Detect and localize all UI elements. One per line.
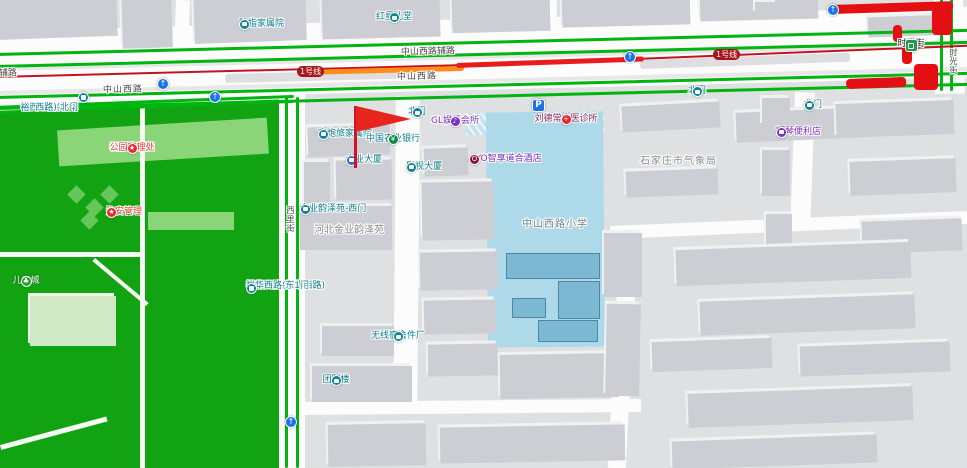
parking-icon[interactable]: P <box>532 99 545 112</box>
school-building <box>506 253 600 279</box>
flag-marker[interactable] <box>356 106 411 132</box>
road-label-zhongshanxilu: 中山西路 <box>103 84 143 95</box>
building <box>672 434 878 468</box>
traffic-event-icon[interactable]: ↑ <box>827 4 839 16</box>
school-building <box>558 281 600 319</box>
label-weather-bureau: 石家庄市气象局 <box>640 157 717 167</box>
road-label-fulu-partial: 中山西路辅路 <box>0 68 17 79</box>
traffic-event-icon[interactable]: ↑ <box>209 91 221 103</box>
park-path <box>140 104 145 468</box>
children-city-building <box>30 296 116 346</box>
building <box>699 294 915 335</box>
clinic-icon: + <box>561 114 572 125</box>
building <box>762 98 790 126</box>
gate-icon <box>412 107 423 118</box>
building <box>849 158 956 196</box>
residence-icon <box>239 19 250 30</box>
metro-station-icon <box>905 39 918 52</box>
building <box>428 343 499 376</box>
traffic-event-icon[interactable]: ↑ <box>624 51 636 63</box>
building <box>652 338 773 372</box>
school-building <box>538 320 598 342</box>
traffic-event-icon[interactable]: ↑ <box>285 416 297 428</box>
building <box>835 100 954 138</box>
building <box>420 251 499 290</box>
park-lawn <box>148 212 234 230</box>
park-path <box>0 252 145 257</box>
label-hebei-jinye-garden: 河北金业韵泽苑 <box>314 226 384 236</box>
building <box>562 0 691 28</box>
traffic-event-icon[interactable]: ↑ <box>157 78 169 90</box>
building <box>336 160 393 201</box>
entertainment-icon: ♪ <box>450 116 461 127</box>
building <box>675 242 911 286</box>
road-label-zhongshanxilu: 中山西路 <box>397 71 437 82</box>
traffic-jam-road <box>846 77 906 89</box>
building <box>687 386 913 428</box>
gate-icon <box>300 204 311 215</box>
school-building <box>512 298 546 318</box>
building <box>424 299 497 334</box>
residence-icon <box>318 129 329 140</box>
building <box>0 0 118 40</box>
building <box>451 0 550 33</box>
building <box>621 101 720 132</box>
traffic-jam-road <box>914 64 938 90</box>
gate-icon <box>692 86 703 97</box>
road-label-shiguangjie: 时光街 <box>948 48 958 75</box>
metro-line1-badge[interactable]: 1号线 <box>297 66 324 77</box>
residence-icon <box>331 375 342 386</box>
building <box>421 181 494 240</box>
bus-stop-icon <box>246 283 257 294</box>
star-icon: ★ <box>127 143 138 154</box>
building <box>500 353 619 399</box>
metro-line1-badge[interactable]: 1号线 <box>713 49 740 60</box>
building <box>121 0 173 49</box>
gate-icon <box>804 100 815 111</box>
map-canvas[interactable]: 中山西路辅路 中山西路辅路 中山西路 中山西路 西里街 时光街 1号线 1号线 … <box>0 0 967 468</box>
road-label-xilijie: 西里街 <box>285 206 295 233</box>
hall-icon <box>389 12 400 23</box>
building <box>440 424 626 463</box>
building <box>762 150 790 196</box>
attraction-icon: ♣ <box>21 276 32 287</box>
residence-icon <box>393 331 404 342</box>
building <box>605 304 641 397</box>
building <box>328 423 427 467</box>
road-top-street <box>174 0 190 46</box>
traffic-jam-road <box>932 8 952 35</box>
star-icon: ★ <box>106 207 117 218</box>
bank-icon: ¥ <box>388 134 399 145</box>
building <box>626 168 719 197</box>
label-zhongshan-school: 中山西路小学 <box>522 220 588 230</box>
building <box>604 233 642 297</box>
road-label-zhongshanxilu-fulu: 中山西路辅路 <box>401 46 455 57</box>
building <box>755 2 777 14</box>
building <box>800 341 951 376</box>
store-icon <box>776 127 787 138</box>
office-building-icon <box>406 162 417 173</box>
bus-stop-icon <box>78 92 89 103</box>
hotel-icon: O <box>469 154 480 165</box>
